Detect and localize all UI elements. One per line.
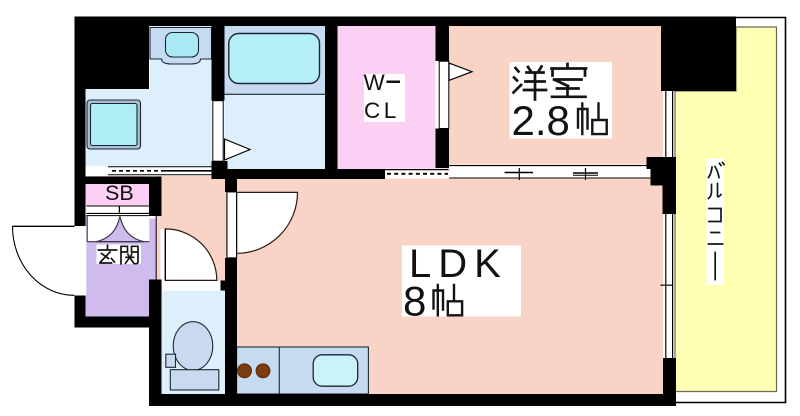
svg-text:SB: SB [105, 181, 134, 205]
svg-text:W: W [364, 70, 386, 95]
svg-text:8: 8 [403, 278, 426, 325]
svg-text:CL: CL [364, 98, 400, 123]
svg-text:2.8: 2.8 [512, 97, 570, 144]
